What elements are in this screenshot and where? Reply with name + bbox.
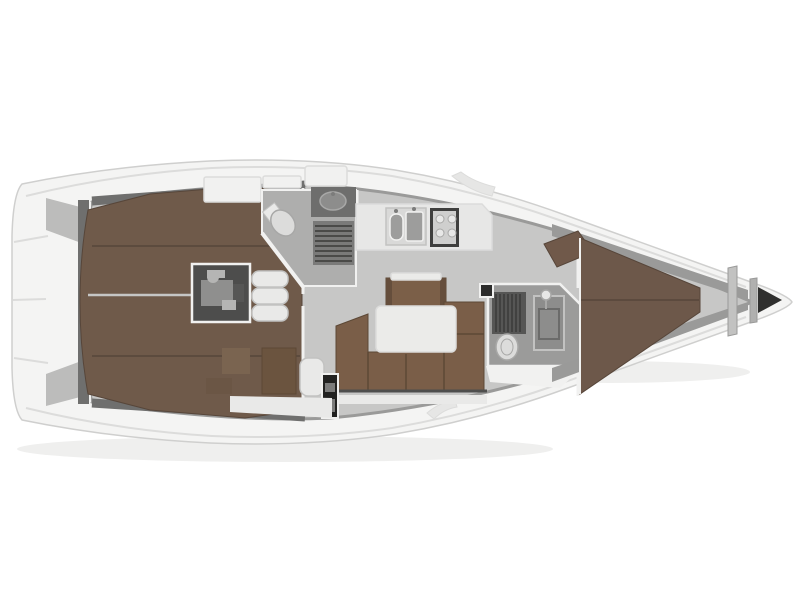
overhead-locker-1 [204, 177, 261, 202]
companionway-hatch [305, 166, 347, 186]
galley-faucet-1 [394, 209, 398, 213]
burner-3 [436, 229, 444, 237]
burner-2 [448, 215, 456, 223]
bow-bulkhead-2 [750, 278, 757, 323]
burner-1 [436, 215, 444, 223]
forward-toilet [496, 334, 518, 360]
center-island-seat [386, 278, 446, 308]
yacht-layout-page [0, 0, 800, 600]
sink-round [390, 214, 403, 240]
step-3 [252, 305, 288, 321]
island-top-cap [391, 273, 441, 280]
aft-shower-grate [313, 221, 354, 265]
forward-grate-slats [496, 294, 520, 332]
instrument-slot-1 [325, 383, 335, 392]
transom-seam-2 [13, 299, 46, 300]
engine-part-low [222, 300, 236, 310]
settee-plinth [334, 395, 487, 404]
nav-seat [300, 358, 324, 396]
forward-shower-grate [492, 292, 526, 334]
galley [356, 204, 492, 250]
step-1 [252, 271, 288, 287]
aft-heads-faucet [331, 192, 335, 196]
chart-table [262, 348, 296, 394]
anchor-locker [728, 266, 782, 336]
step-2 [252, 288, 288, 304]
aft-cabin-door-panel [222, 348, 250, 374]
engine-pulley [207, 271, 219, 283]
sink-square [406, 212, 423, 241]
yacht-interior-floorplan [0, 0, 800, 600]
heads-door-latch [480, 284, 493, 297]
overhead-locker-2 [263, 176, 301, 188]
saloon-table [376, 306, 456, 352]
shower-head [541, 290, 551, 300]
burner-4 [448, 229, 456, 237]
island-shade-left [386, 278, 392, 308]
nav-locker [206, 378, 232, 394]
galley-faucet-2 [412, 207, 416, 211]
bow-bulkhead-1 [728, 266, 737, 336]
companionway-steps [252, 271, 288, 321]
engine-part-side [233, 284, 244, 302]
engine-compartment [192, 264, 250, 322]
